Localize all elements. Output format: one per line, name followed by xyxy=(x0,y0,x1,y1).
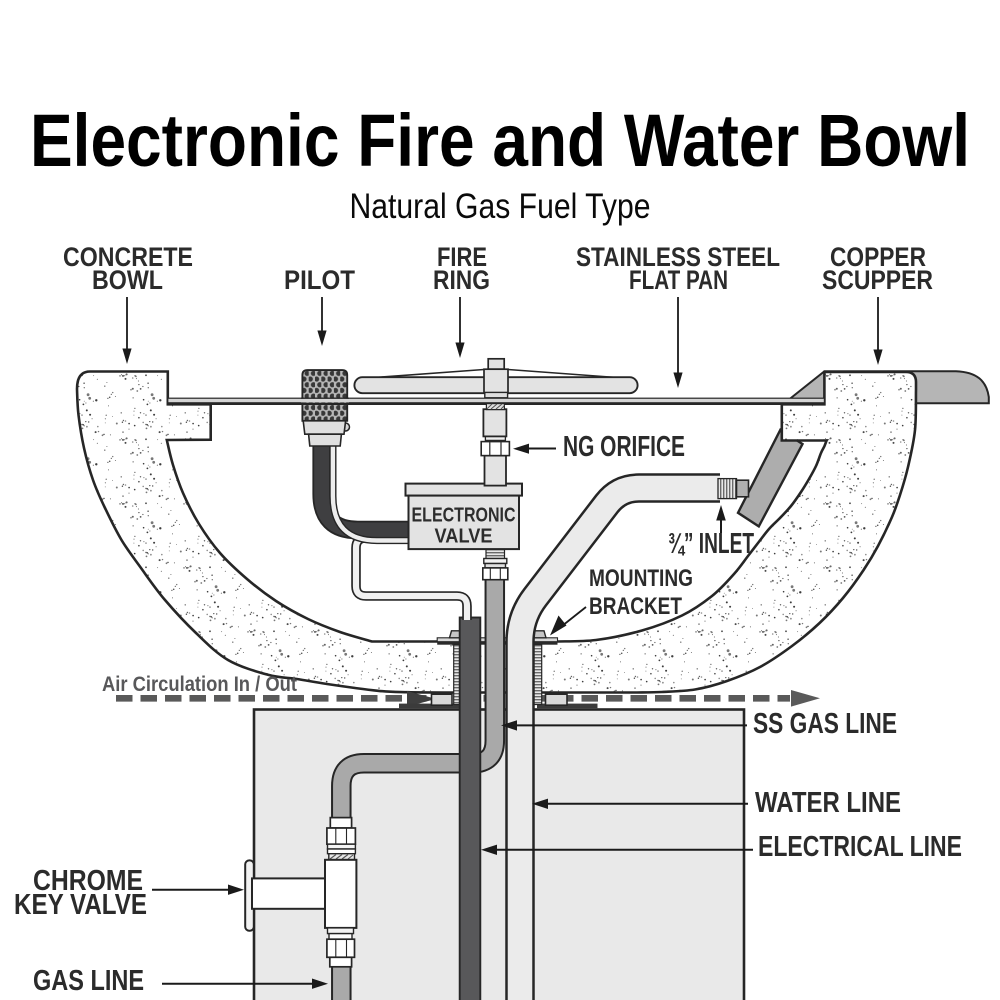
svg-text:KEY VALVE: KEY VALVE xyxy=(14,889,147,921)
svg-text:BOWL: BOWL xyxy=(92,265,163,295)
svg-text:Electronic Fire and Water Bowl: Electronic Fire and Water Bowl xyxy=(30,99,970,182)
svg-text:ELECTRONIC: ELECTRONIC xyxy=(412,505,516,527)
svg-text:GAS LINE: GAS LINE xyxy=(33,965,144,997)
svg-text:BRACKET: BRACKET xyxy=(589,593,682,620)
svg-text:FLAT PAN: FLAT PAN xyxy=(629,265,728,295)
svg-text:VALVE: VALVE xyxy=(435,526,493,548)
svg-text:WATER LINE: WATER LINE xyxy=(755,787,901,819)
svg-text:PILOT: PILOT xyxy=(284,265,355,295)
svg-text:¾” INLET: ¾” INLET xyxy=(668,528,754,560)
svg-text:SCUPPER: SCUPPER xyxy=(822,265,933,295)
svg-text:NG ORIFICE: NG ORIFICE xyxy=(563,431,685,463)
svg-text:Air Circulation In / Out: Air Circulation In / Out xyxy=(102,672,297,696)
svg-text:ELECTRICAL LINE: ELECTRICAL LINE xyxy=(758,831,962,863)
svg-text:SS GAS LINE: SS GAS LINE xyxy=(753,708,897,740)
svg-text:RING: RING xyxy=(433,265,490,295)
svg-text:MOUNTING: MOUNTING xyxy=(589,565,693,592)
svg-text:Natural Gas Fuel Type: Natural Gas Fuel Type xyxy=(350,187,651,226)
